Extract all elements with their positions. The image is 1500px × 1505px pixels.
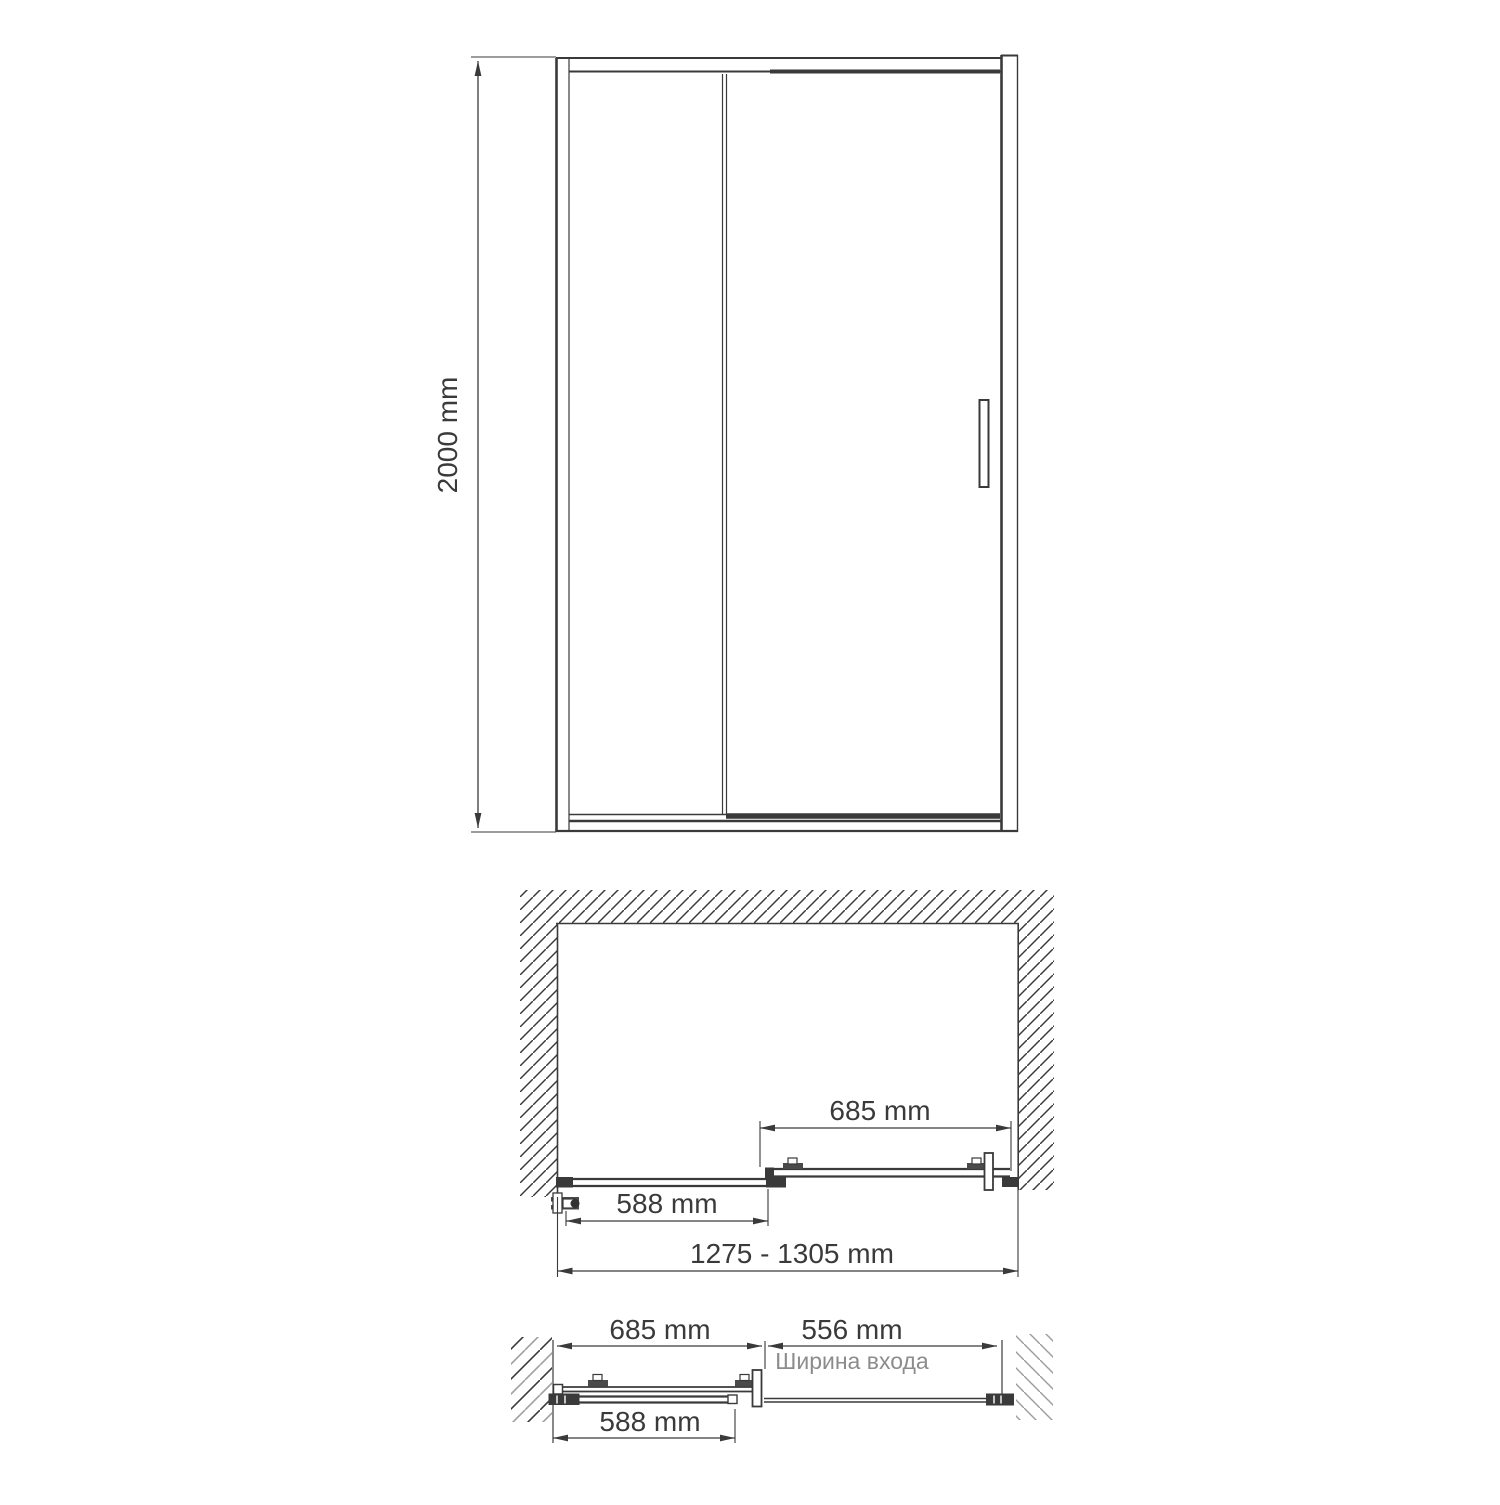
- shower-door-technical-drawing: 2000 mm: [0, 0, 1500, 1500]
- right-wall-connector: [1002, 1177, 1019, 1187]
- plan-view-closed: 685 mm 588 mm 1275 - 1305 mm: [520, 890, 1054, 1277]
- fixed-glass-dimension: 588 mm: [553, 1406, 735, 1443]
- overall-width-range-label: 1275 - 1305 mm: [690, 1238, 894, 1269]
- plan-view-open: 685 mm 556 mm Ширина входа 588 mm: [511, 1314, 1053, 1443]
- roller-bracket: [588, 1375, 608, 1387]
- door-handle: [980, 400, 989, 487]
- rail-wall-bracket: [986, 1394, 1014, 1406]
- door-handle-plan: [985, 1153, 994, 1190]
- right-wall-hatching: [1016, 1334, 1053, 1420]
- door-width-label: 685 mm: [829, 1095, 930, 1126]
- roller-bracket: [783, 1158, 803, 1169]
- front-elevation-view: 2000 mm: [432, 55, 1018, 832]
- fixed-panel-end-cap: [728, 1395, 737, 1404]
- height-dimension-label: 2000 mm: [432, 377, 463, 494]
- wall-mount-bracket: [551, 1193, 580, 1213]
- fixed-glass-width-label: 588 mm: [616, 1188, 717, 1219]
- panel-overlap-connector: [766, 1177, 786, 1188]
- wall-hatching: [520, 890, 1054, 1197]
- entrance-caption: Ширина входа: [775, 1348, 929, 1374]
- fixed-glass-width-label: 588 mm: [599, 1406, 700, 1437]
- entrance-width-dimension: 556 mm Ширина входа: [765, 1314, 997, 1374]
- fixed-panel-wall-bracket: [549, 1394, 580, 1406]
- height-dimension: 2000 mm: [432, 57, 556, 832]
- sliding-panel-left-cap: [765, 1168, 774, 1179]
- door-frame: [556, 55, 1018, 832]
- left-wall-hatching: [511, 1337, 552, 1422]
- door-assembly-open: [549, 1370, 1015, 1407]
- blueprint-canvas: 2000 mm: [0, 0, 1500, 1500]
- door-width-label: 685 mm: [609, 1314, 710, 1345]
- fixed-panel-left-block: [556, 1177, 573, 1188]
- door-handle-plan: [753, 1370, 762, 1407]
- entrance-width-label: 556 mm: [801, 1314, 902, 1345]
- fixed-glass-dimension: 588 mm: [566, 1188, 768, 1226]
- door-width-dimension: 685 mm: [557, 1314, 762, 1346]
- sliding-panel-left-cap: [554, 1385, 563, 1395]
